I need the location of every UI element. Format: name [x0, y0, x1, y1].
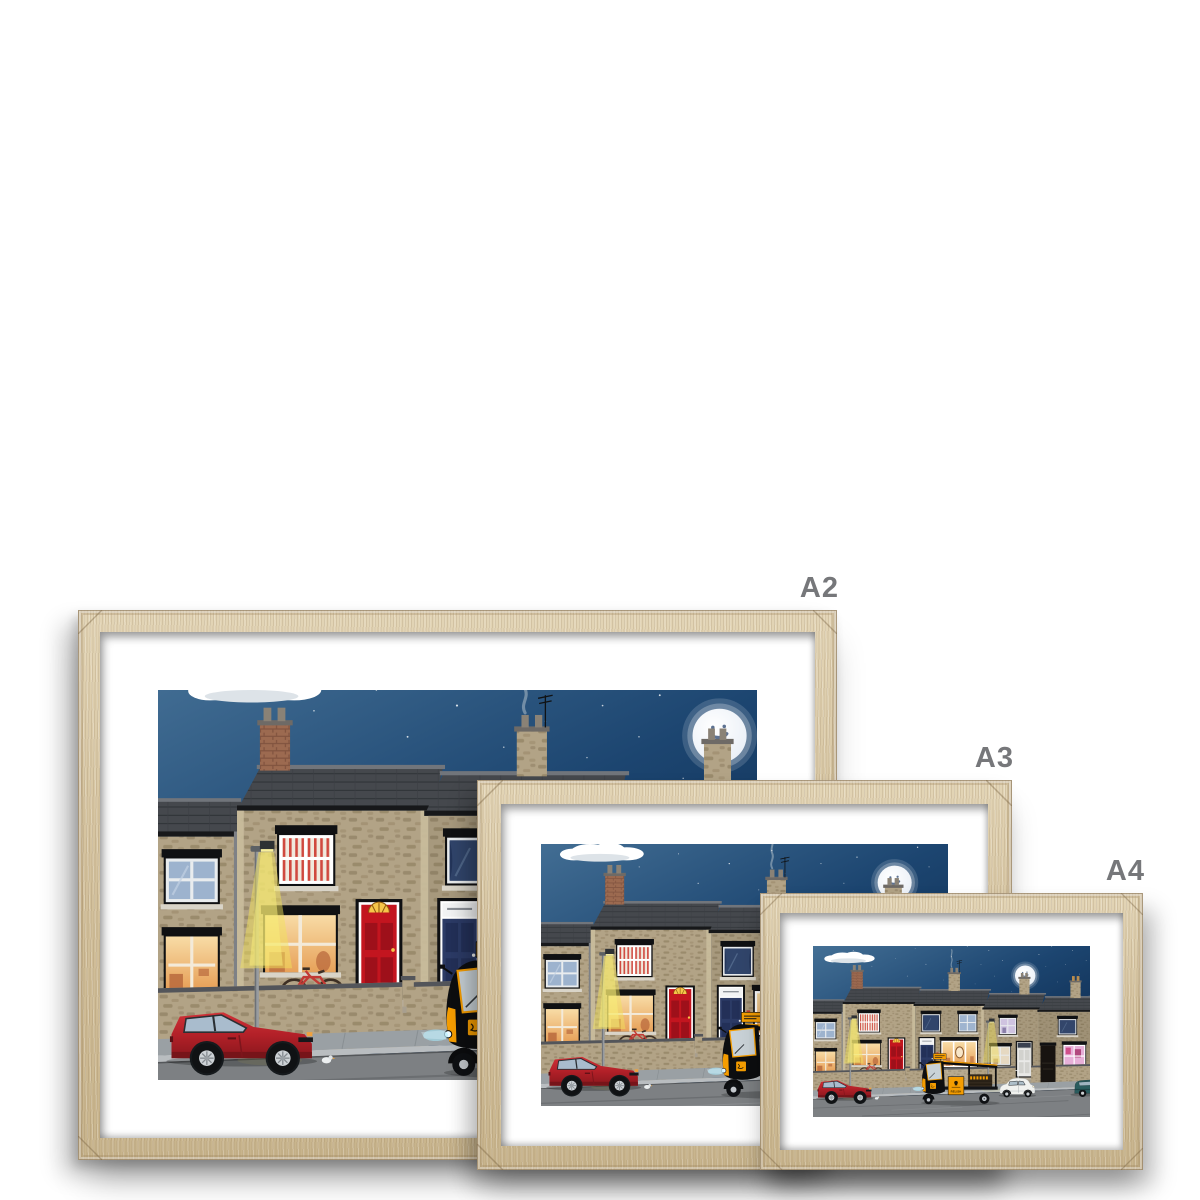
frame-mitre-line [760, 1148, 782, 1170]
frame-mitre-line [813, 610, 837, 634]
art-print-a4 [813, 946, 1090, 1117]
mockup-canvas: RELISH [0, 0, 1200, 1200]
frame-mitre-line [477, 780, 503, 806]
framed-print-a4: A4 [760, 893, 1143, 1170]
frame-mitre-line [78, 610, 102, 634]
frame-mitre-line [78, 1136, 102, 1160]
size-label-a3: A3 [975, 742, 1014, 775]
frame-mitre-line [986, 780, 1012, 806]
wooden-frame-a4 [760, 893, 1143, 1170]
frame-mitre-line [477, 1144, 503, 1170]
size-label-a2: A2 [800, 572, 839, 605]
size-label-a4: A4 [1106, 855, 1145, 888]
mat-board-a4 [780, 913, 1123, 1150]
frame-mitre-line [1121, 1148, 1143, 1170]
frame-mitre-line [1121, 893, 1143, 915]
frame-mitre-line [760, 893, 782, 915]
